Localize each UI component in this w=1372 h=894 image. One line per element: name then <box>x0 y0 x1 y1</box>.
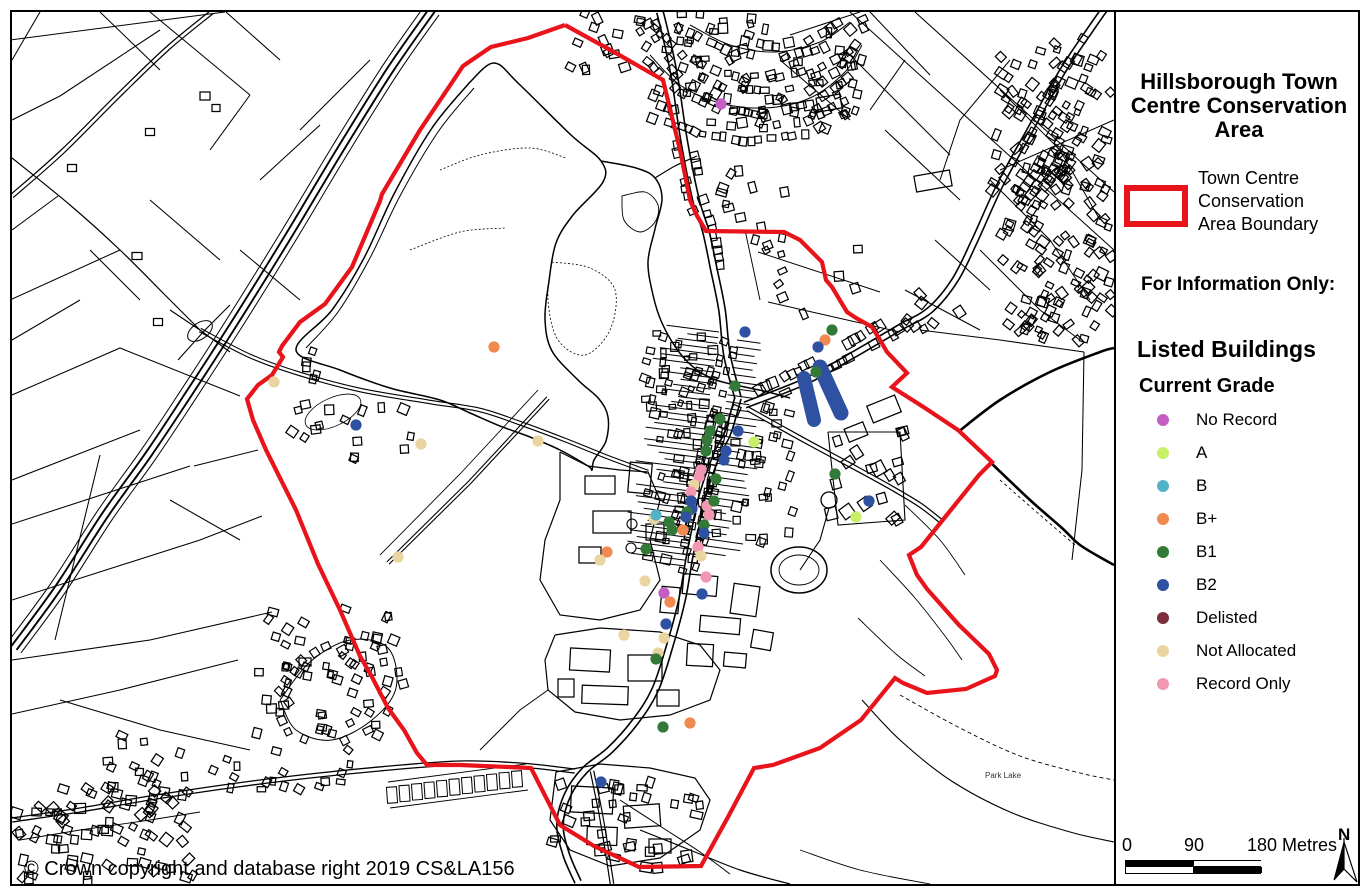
svg-text:Park Lake: Park Lake <box>985 771 1022 780</box>
